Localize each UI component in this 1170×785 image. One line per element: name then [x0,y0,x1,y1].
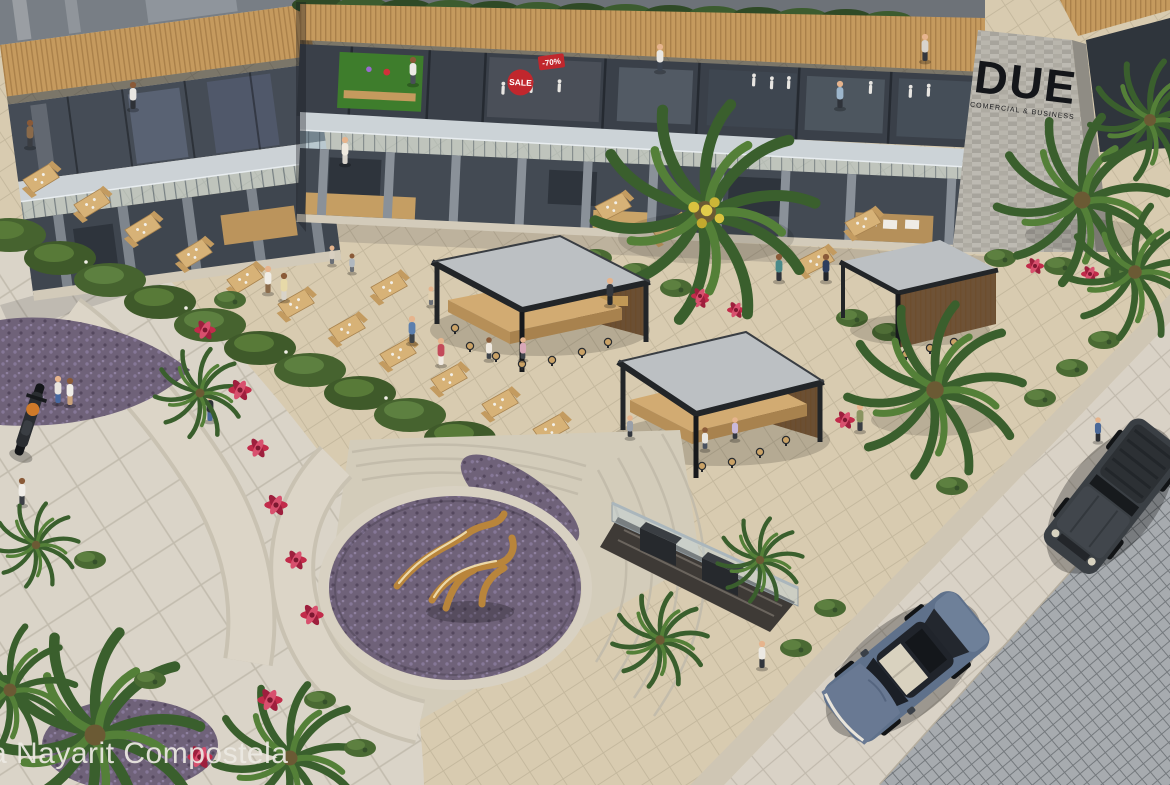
rendering-scene: SALE -70% [0,0,1170,785]
watermark-text: a Nayarit Compostela [0,737,288,771]
sale-sign-text: SALE [509,77,532,88]
sculpture-mound [323,491,587,685]
building-right-wing: SALE -70% [292,0,989,254]
plaza-rendering-svg: SALE -70% [0,0,1170,785]
